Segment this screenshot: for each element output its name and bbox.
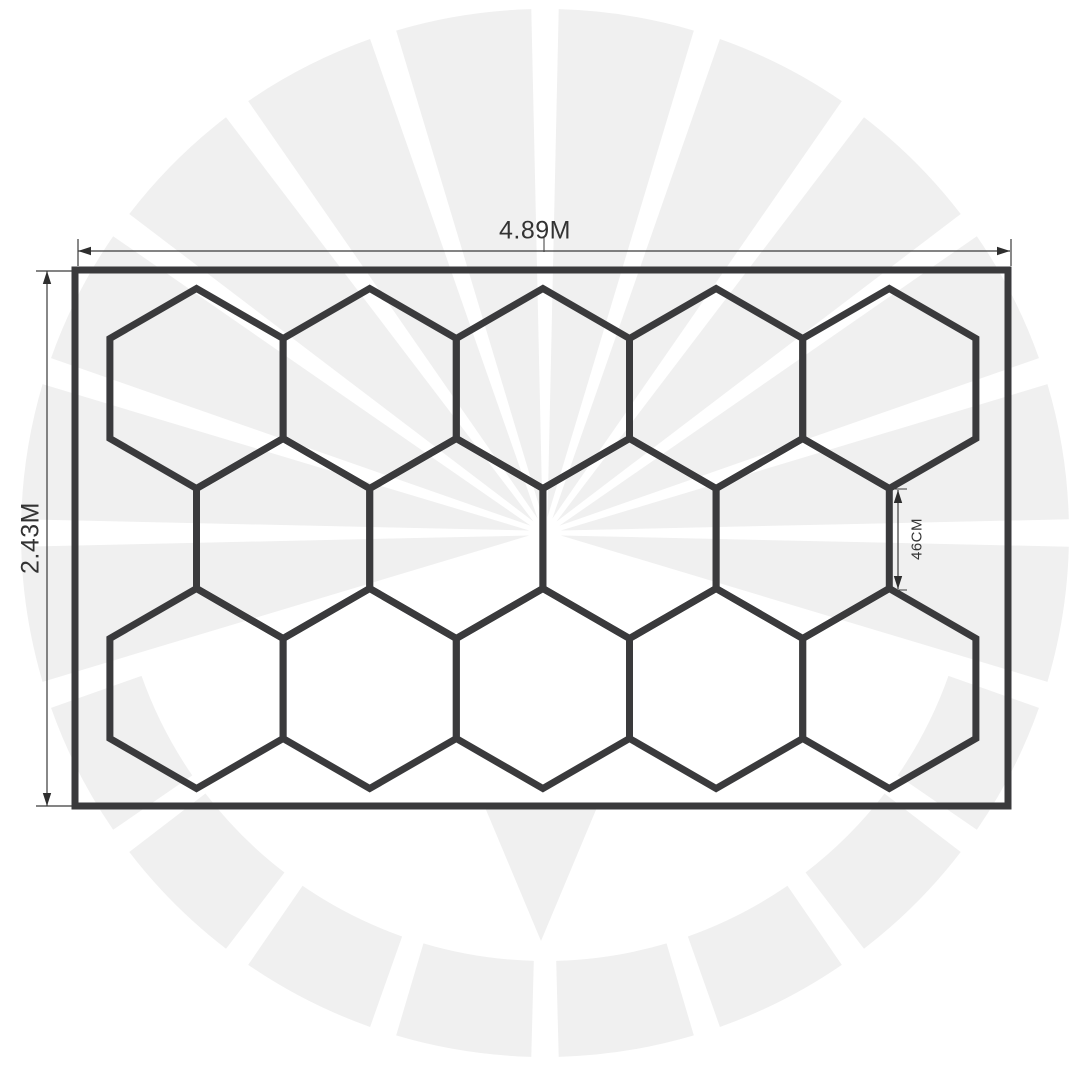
watermark-ring-segment (688, 886, 842, 1027)
hexagon-row3-col4 (630, 589, 803, 789)
width-arrow-right (997, 247, 1010, 255)
height-arrow-bottom (43, 793, 51, 806)
height-arrow-top (43, 271, 51, 284)
diagram-stage: 4.89M 2.43M 46CM (0, 0, 1080, 1080)
watermark-ring-segment (396, 943, 534, 1056)
hex-side-dimension-label: 46CM (909, 518, 926, 560)
watermark-ring-segment (806, 794, 961, 949)
watermark-ring-segment (129, 794, 284, 949)
width-dimension-label: 4.89M (499, 217, 571, 246)
width-arrow-left (78, 247, 91, 255)
watermark-v-wedge (484, 805, 598, 941)
watermark-ring-segment (556, 943, 694, 1056)
hexagon-row3-col3 (456, 589, 629, 789)
watermark-ray-wedge (561, 536, 1069, 682)
hexagon-row3-col2 (283, 589, 456, 789)
height-dimension-label: 2.43M (17, 502, 46, 574)
watermark-ring-segment (248, 886, 402, 1027)
